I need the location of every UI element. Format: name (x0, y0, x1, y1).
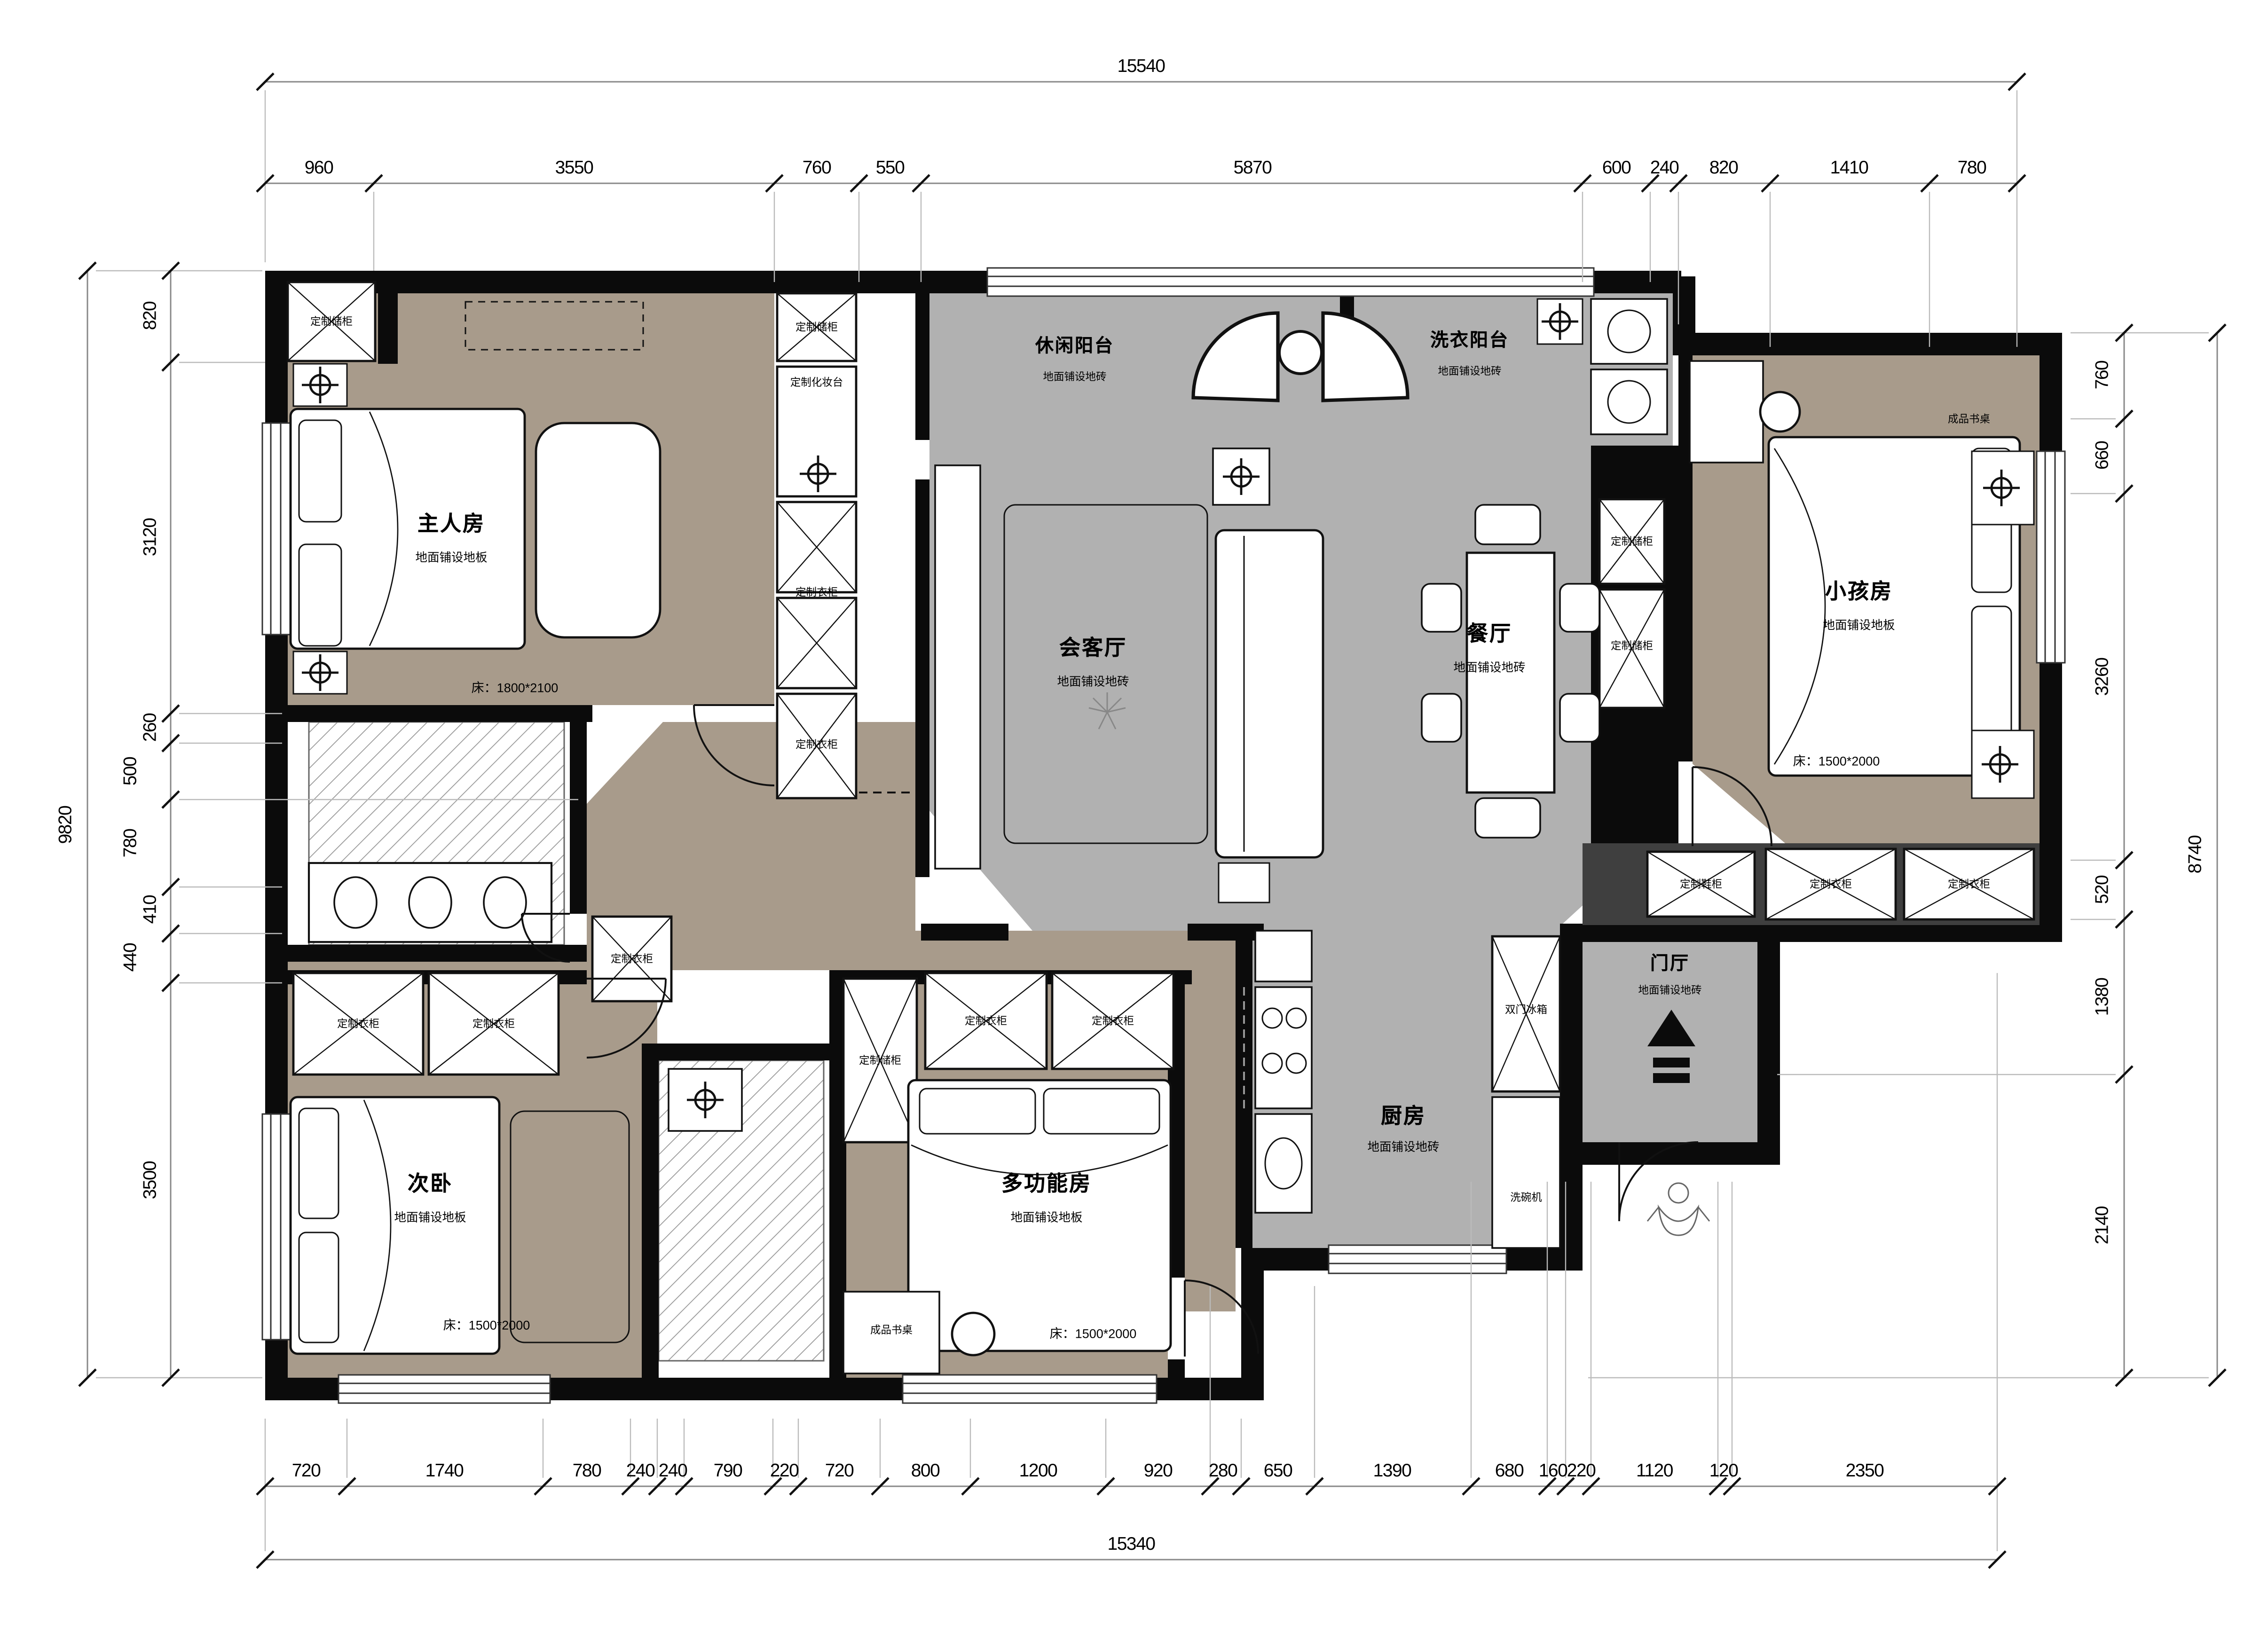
cabinet-label-storage-strip: 定制储柜 (793, 321, 841, 334)
room-label-second: 次卧 (408, 1172, 453, 1197)
dim-bottom-5: 790 (714, 1460, 742, 1481)
dim-bottom-13: 1390 (1373, 1460, 1411, 1481)
cabinet-label-wardrobe-strip-1: 定制衣柜 (793, 586, 841, 599)
cabinet-label-wardrobe-second-2: 定制衣柜 (470, 1018, 518, 1030)
bed-size-multi: 床：1500*2000 (1050, 1326, 1137, 1341)
cabinet-label-wardrobe-multi-2: 定制衣柜 (1089, 1015, 1137, 1028)
dim-top-9: 780 (1958, 157, 1986, 178)
room-label-living: 会客厅 (1059, 636, 1127, 661)
dim-left-1: 3120 (139, 518, 160, 557)
dim-left-6: 440 (119, 943, 141, 972)
desk-label-kids: 成品书桌 (1948, 414, 1990, 426)
room-label-master: 主人房 (417, 512, 485, 537)
room-label-kids: 小孩房 (1825, 580, 1893, 604)
room-sub-kids: 地面铺设地板 (1823, 619, 1895, 633)
dim-left-total: 9820 (55, 806, 76, 844)
dim-top-0: 960 (305, 157, 333, 178)
dim-bottom-17: 1120 (1636, 1460, 1673, 1481)
dim-bottom-3: 240 (626, 1460, 655, 1481)
cabinet-label-storage-kids-1: 定制储柜 (1608, 535, 1656, 548)
dim-top-1: 3550 (555, 157, 593, 178)
dishwasher-label: 洗碗机 (1510, 1193, 1542, 1205)
dim-bottom-6: 220 (770, 1460, 799, 1481)
bed-size-kids: 床：1500*2000 (1793, 754, 1880, 769)
cabinet-label-wardrobe-kids-2: 定制衣柜 (1945, 878, 1993, 891)
cabinet-label-storage-multi: 定制储柜 (856, 1054, 904, 1067)
room-sub-dining: 地面铺设地砖 (1453, 661, 1525, 675)
room-sub-laundry-balcony: 地面铺设地砖 (1438, 366, 1502, 378)
dim-bottom-0: 720 (292, 1460, 321, 1481)
dim-top-3: 550 (876, 157, 905, 178)
dim-top-2: 760 (803, 157, 831, 178)
dim-top-5: 600 (1602, 157, 1631, 178)
dim-left-5: 410 (139, 895, 160, 924)
dim-bottom-14: 680 (1495, 1460, 1524, 1481)
dim-left-7: 3500 (139, 1161, 160, 1200)
dim-right-4: 1380 (2091, 978, 2112, 1016)
dim-bottom-7: 720 (825, 1460, 854, 1481)
dim-bottom-2: 780 (573, 1460, 601, 1481)
cabinet-label-storage-master: 定制储柜 (307, 315, 355, 328)
cabinet-label-wardrobe-second-1: 定制衣柜 (334, 1018, 382, 1030)
cabinet-label-storage-kids-2: 定制储柜 (1608, 640, 1656, 652)
person-icon (1647, 1183, 1709, 1235)
dim-top-7: 820 (1709, 157, 1738, 178)
dim-right-0: 760 (2091, 361, 2112, 390)
dim-left-4: 780 (119, 829, 141, 858)
dim-bottom-9: 1200 (1019, 1460, 1057, 1481)
dim-bottom-19: 2350 (1846, 1460, 1884, 1481)
dim-right-total: 8740 (2184, 836, 2205, 874)
dim-bottom-8: 800 (911, 1460, 940, 1481)
dim-left-3: 500 (119, 757, 141, 786)
room-sub-foyer: 地面铺设地砖 (1638, 985, 1702, 997)
cabinet-label-wardrobe-corridor: 定制衣柜 (608, 953, 656, 965)
dim-right-1: 660 (2091, 441, 2112, 470)
dim-top-6: 240 (1650, 157, 1679, 178)
dim-top-total: 15540 (1118, 55, 1165, 76)
room-sub-leisure-balcony: 地面铺设地砖 (1043, 372, 1107, 384)
cabinet-label-wardrobe-multi-1: 定制衣柜 (962, 1015, 1010, 1028)
room-sub-living: 地面铺设地砖 (1057, 675, 1129, 689)
cabinet-label-vanity: 定制化妆台 (790, 377, 843, 390)
dim-bottom-16: 220 (1567, 1460, 1596, 1481)
dim-bottom-12: 650 (1264, 1460, 1292, 1481)
dim-right-2: 3260 (2091, 658, 2112, 696)
dim-top-8: 1410 (1830, 157, 1868, 178)
dim-left-0: 820 (139, 302, 160, 330)
dim-bottom-18: 120 (1709, 1460, 1738, 1481)
room-label-foyer: 门厅 (1650, 954, 1690, 975)
desk-label-multi: 成品书桌 (870, 1325, 913, 1337)
room-label-kitchen: 厨房 (1381, 1105, 1426, 1129)
room-sub-master: 地面铺设地板 (415, 551, 487, 565)
dim-bottom-10: 920 (1144, 1460, 1173, 1481)
room-label-multi: 多功能房 (1001, 1172, 1092, 1197)
bed-size-second: 床：1500*2000 (443, 1318, 530, 1333)
bed-size-master: 床：1800*2100 (472, 681, 559, 695)
room-sub-kitchen: 地面铺设地砖 (1367, 1141, 1439, 1154)
floor-plan-drawing (0, 0, 2268, 1640)
dim-bottom-total: 15340 (1108, 1533, 1155, 1554)
dim-bottom-4: 240 (659, 1460, 687, 1481)
dim-top-4: 5870 (1234, 157, 1272, 178)
cabinet-label-wardrobe-strip-2: 定制衣柜 (793, 738, 841, 751)
dim-left-2: 260 (139, 714, 160, 742)
cabinet-label-wardrobe-kids-1: 定制衣柜 (1807, 878, 1855, 891)
room-label-leisure-balcony: 休闲阳台 (1035, 337, 1114, 358)
room-sub-second: 地面铺设地板 (394, 1211, 466, 1225)
room-sub-multi: 地面铺设地板 (1010, 1211, 1082, 1225)
dim-bottom-11: 280 (1209, 1460, 1237, 1481)
room-label-laundry-balcony: 洗衣阳台 (1430, 331, 1509, 352)
fridge-label: 双门冰箱 (1502, 1004, 1550, 1016)
dim-bottom-15: 160 (1539, 1460, 1567, 1481)
dim-right-5: 2140 (2091, 1207, 2112, 1245)
dim-bottom-1: 1740 (425, 1460, 464, 1481)
dim-right-3: 520 (2091, 876, 2112, 904)
room-label-dining: 餐厅 (1467, 622, 1512, 647)
floor-plan: 主人房 地面铺设地板 床：1800*2100 次卧 地面铺设地板 床：1500*… (0, 0, 2268, 1640)
cabinet-label-shoe: 定制鞋柜 (1677, 878, 1725, 891)
